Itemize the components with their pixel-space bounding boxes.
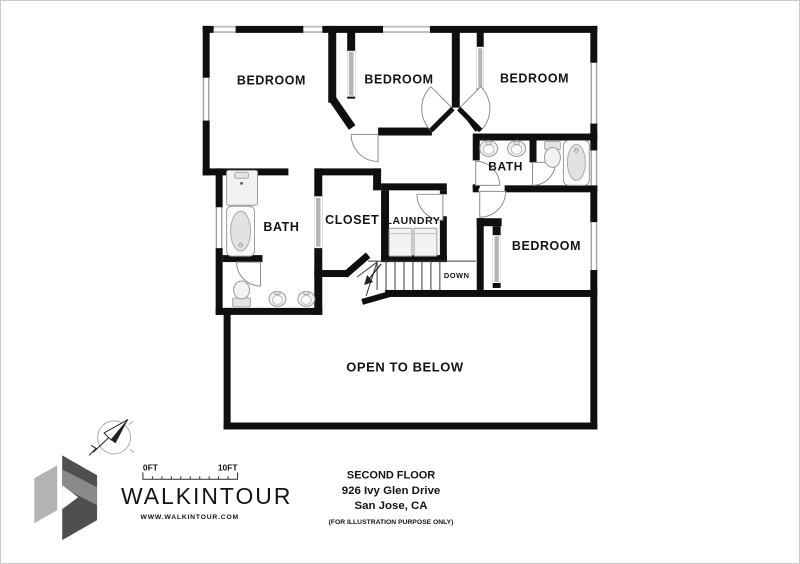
toilet bbox=[544, 142, 560, 168]
washer bbox=[389, 228, 412, 256]
bathtub bbox=[563, 141, 589, 186]
room-label-bath-left: BATH bbox=[263, 220, 299, 234]
logo-website: WWW.WALKINTOUR.COM bbox=[141, 514, 239, 521]
bathtub bbox=[227, 206, 255, 256]
window bbox=[203, 78, 210, 121]
wall bbox=[381, 183, 447, 190]
wall bbox=[440, 190, 447, 194]
wall bbox=[216, 308, 323, 315]
logo-mark-light bbox=[34, 465, 57, 523]
city-line: San Jose, CA bbox=[354, 500, 427, 512]
wall bbox=[473, 141, 480, 161]
room-label-closet: CLOSET bbox=[325, 213, 379, 227]
address-line: 926 Ivy Glen Drive bbox=[342, 485, 441, 497]
wall bbox=[385, 290, 597, 297]
room-label-bedroom-top-middle: BEDROOM bbox=[364, 73, 433, 87]
wall bbox=[505, 185, 598, 192]
down-arrow-icon bbox=[364, 264, 381, 285]
sink bbox=[269, 291, 286, 306]
room-labels: BEDROOM BEDROOM BEDROOM BATH BEDROOM BAT… bbox=[237, 72, 581, 375]
window bbox=[590, 222, 597, 270]
wall bbox=[473, 134, 598, 141]
room-label-bath-upper-right: BATH bbox=[488, 159, 523, 173]
scale-bar: 0FT 10FT bbox=[143, 462, 238, 479]
sliding-door bbox=[316, 198, 320, 247]
window bbox=[214, 26, 236, 33]
window bbox=[590, 63, 597, 124]
wall bbox=[314, 270, 347, 277]
floorplan-page: DOWN BEDROOM BEDROOM BEDROOM BATH BEDROO… bbox=[0, 0, 800, 564]
wall bbox=[373, 168, 381, 190]
sink bbox=[508, 141, 526, 157]
floor-title: SECOND FLOOR bbox=[347, 469, 435, 481]
floorplan-canvas: DOWN BEDROOM BEDROOM BEDROOM BATH BEDROO… bbox=[1, 1, 799, 563]
wall bbox=[452, 32, 460, 108]
sliding-door bbox=[478, 48, 482, 87]
wall-diagonal bbox=[345, 255, 368, 275]
wall bbox=[224, 423, 598, 430]
door-arc bbox=[480, 191, 506, 217]
wall bbox=[224, 308, 231, 430]
wall bbox=[473, 185, 479, 192]
sliding-door bbox=[349, 52, 354, 96]
disclaimer: (FOR ILLUSTRATION PURPOSE ONLY) bbox=[329, 519, 454, 526]
room-label-bedroom-right: BEDROOM bbox=[512, 239, 581, 253]
wall bbox=[530, 141, 537, 163]
compass-icon bbox=[89, 420, 134, 456]
window bbox=[383, 26, 430, 33]
wall bbox=[378, 128, 432, 136]
room-label-open-to-below: OPEN TO BELOW bbox=[346, 360, 464, 375]
sink bbox=[480, 141, 498, 157]
toilet bbox=[233, 281, 251, 307]
wall bbox=[477, 218, 484, 297]
scale-end-label: 10FT bbox=[218, 462, 239, 472]
door-arc bbox=[351, 135, 378, 162]
stairs-label: DOWN bbox=[444, 271, 470, 280]
dryer bbox=[414, 228, 437, 256]
room-label-bedroom-top-left: BEDROOM bbox=[237, 74, 306, 88]
window bbox=[303, 26, 322, 33]
logo-text: WALKINTOUR bbox=[121, 483, 292, 509]
walkintour-logo: WALKINTOUR WWW.WALKINTOUR.COM bbox=[34, 455, 292, 540]
room-label-bedroom-top-right: BEDROOM bbox=[500, 72, 569, 86]
sliding-door bbox=[494, 236, 498, 282]
shower bbox=[227, 170, 258, 205]
wall-diagonal bbox=[332, 99, 352, 128]
title-block: SECOND FLOOR 926 Ivy Glen Drive San Jose… bbox=[329, 469, 454, 526]
scale-start-label: 0FT bbox=[143, 462, 159, 472]
room-label-laundry: LAUNDRY bbox=[386, 216, 441, 227]
scale-ruler bbox=[143, 472, 238, 479]
wall bbox=[315, 168, 381, 175]
wall bbox=[328, 26, 336, 103]
window bbox=[216, 207, 223, 248]
sink bbox=[298, 291, 315, 306]
window bbox=[590, 150, 597, 185]
